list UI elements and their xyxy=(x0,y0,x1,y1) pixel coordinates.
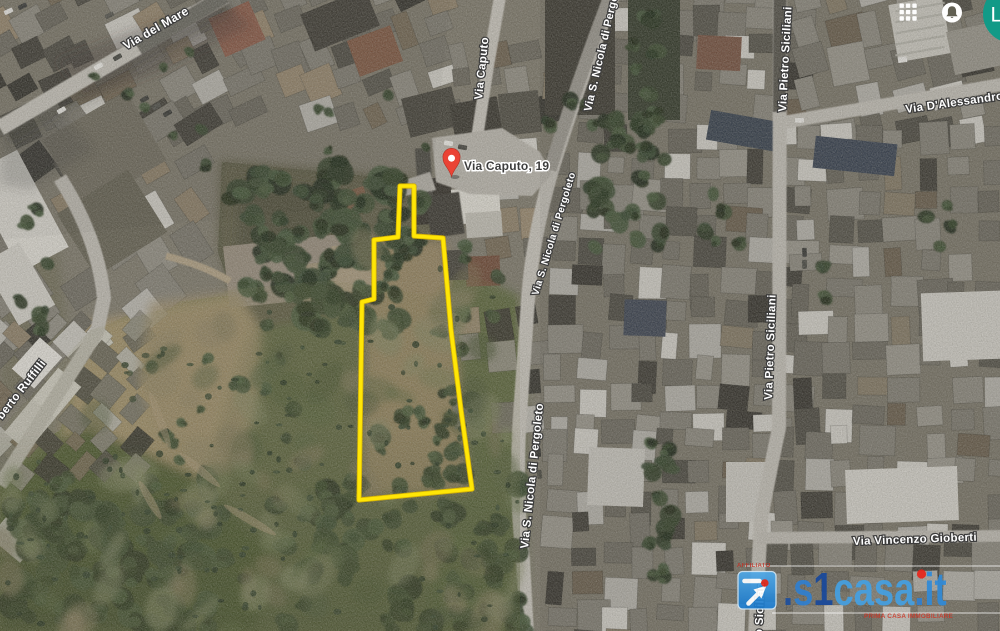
svg-text:AFFILIATO: AFFILIATO xyxy=(737,563,771,569)
svg-text:PRIMA CASA IMMOBILIARE: PRIMA CASA IMMOBILIARE xyxy=(864,613,953,620)
svg-text:Via Caputo, 19: Via Caputo, 19 xyxy=(464,159,549,173)
svg-text:L: L xyxy=(991,4,1000,27)
